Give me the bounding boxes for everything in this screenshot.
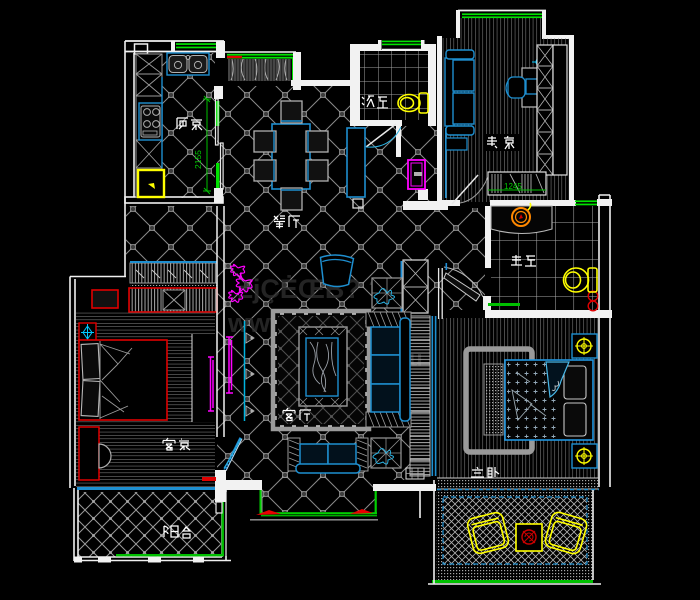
svg-text:1245: 1245 [504, 182, 522, 191]
svg-text:2155: 2155 [193, 150, 203, 169]
